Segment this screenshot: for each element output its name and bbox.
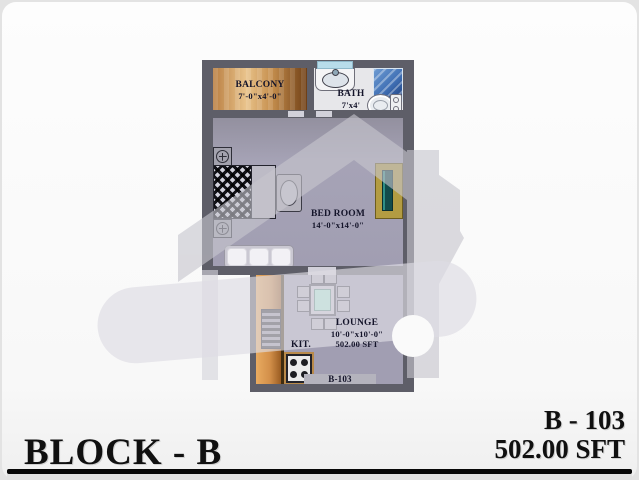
- kitchen-name: KIT.: [285, 340, 317, 351]
- bath-tile: [317, 61, 353, 69]
- unit-info: B - 103 502.00 SFT: [494, 406, 625, 464]
- unit-area: 502.00 SFT: [494, 435, 625, 464]
- lounge-name: LOUNGE: [302, 318, 412, 329]
- wall-left: [202, 60, 213, 274]
- flyer-page: BALCONY 7'-0"x4'-0" BATH 7'x4' BED ROOM …: [0, 0, 639, 480]
- bath-name: BATH: [322, 89, 380, 100]
- kitchen-sink-icon: [261, 309, 281, 349]
- lounge-area: 502.00 SFT: [302, 339, 412, 349]
- chair-icon: [337, 286, 350, 298]
- bath-dims: 7'x4': [322, 100, 380, 110]
- bedroom-name: BED ROOM: [278, 209, 398, 220]
- wash-basin-icon: [315, 68, 355, 91]
- unit-entry-label: B-103: [304, 374, 376, 385]
- chair-icon: [297, 300, 310, 312]
- bed-quilt: [214, 166, 252, 218]
- unit-entry-text: B-103: [304, 374, 376, 385]
- bottom-strip: [7, 474, 632, 480]
- basin-tap: [332, 69, 339, 76]
- balcony-label: BALCONY 7'-0"x4'-0": [213, 80, 307, 101]
- wall-lounge-left: [250, 275, 256, 392]
- balcony-name: BALCONY: [213, 80, 307, 91]
- bedroom-label: BED ROOM 14'-0"x14'-0": [278, 209, 398, 230]
- wall-lounge-bottom: [250, 384, 414, 392]
- lounge-label: LOUNGE 10'-0"x10'-0" 502.00 SFT: [302, 318, 412, 349]
- bedroom-dims: 14'-0"x14'-0": [278, 220, 398, 230]
- nightstand: [213, 219, 232, 238]
- lounge-dims: 10'-0"x10'-0": [302, 329, 412, 339]
- dresser-icon: [276, 174, 302, 212]
- balcony-door: [288, 111, 304, 117]
- flyer-card: BALCONY 7'-0"x4'-0" BATH 7'x4' BED ROOM …: [2, 2, 637, 480]
- chair-icon: [337, 300, 350, 312]
- balcony-dims: 7'-0"x4'-0": [213, 91, 307, 101]
- block-title: BLOCK - B: [24, 431, 222, 474]
- bed-icon: [213, 165, 276, 219]
- nightstand: [213, 147, 232, 166]
- wall-under-balcony: [202, 110, 414, 118]
- tv-screen: [382, 170, 393, 211]
- unit-number: B - 103: [494, 406, 625, 435]
- kitchen-label: KIT.: [285, 340, 317, 351]
- dining-table-icon: [309, 284, 336, 316]
- bath-door: [316, 111, 332, 117]
- footer-divider: [7, 469, 632, 474]
- bath-label: BATH 7'x4': [322, 89, 380, 110]
- lounge-door: [308, 267, 336, 275]
- chair-icon: [297, 286, 310, 298]
